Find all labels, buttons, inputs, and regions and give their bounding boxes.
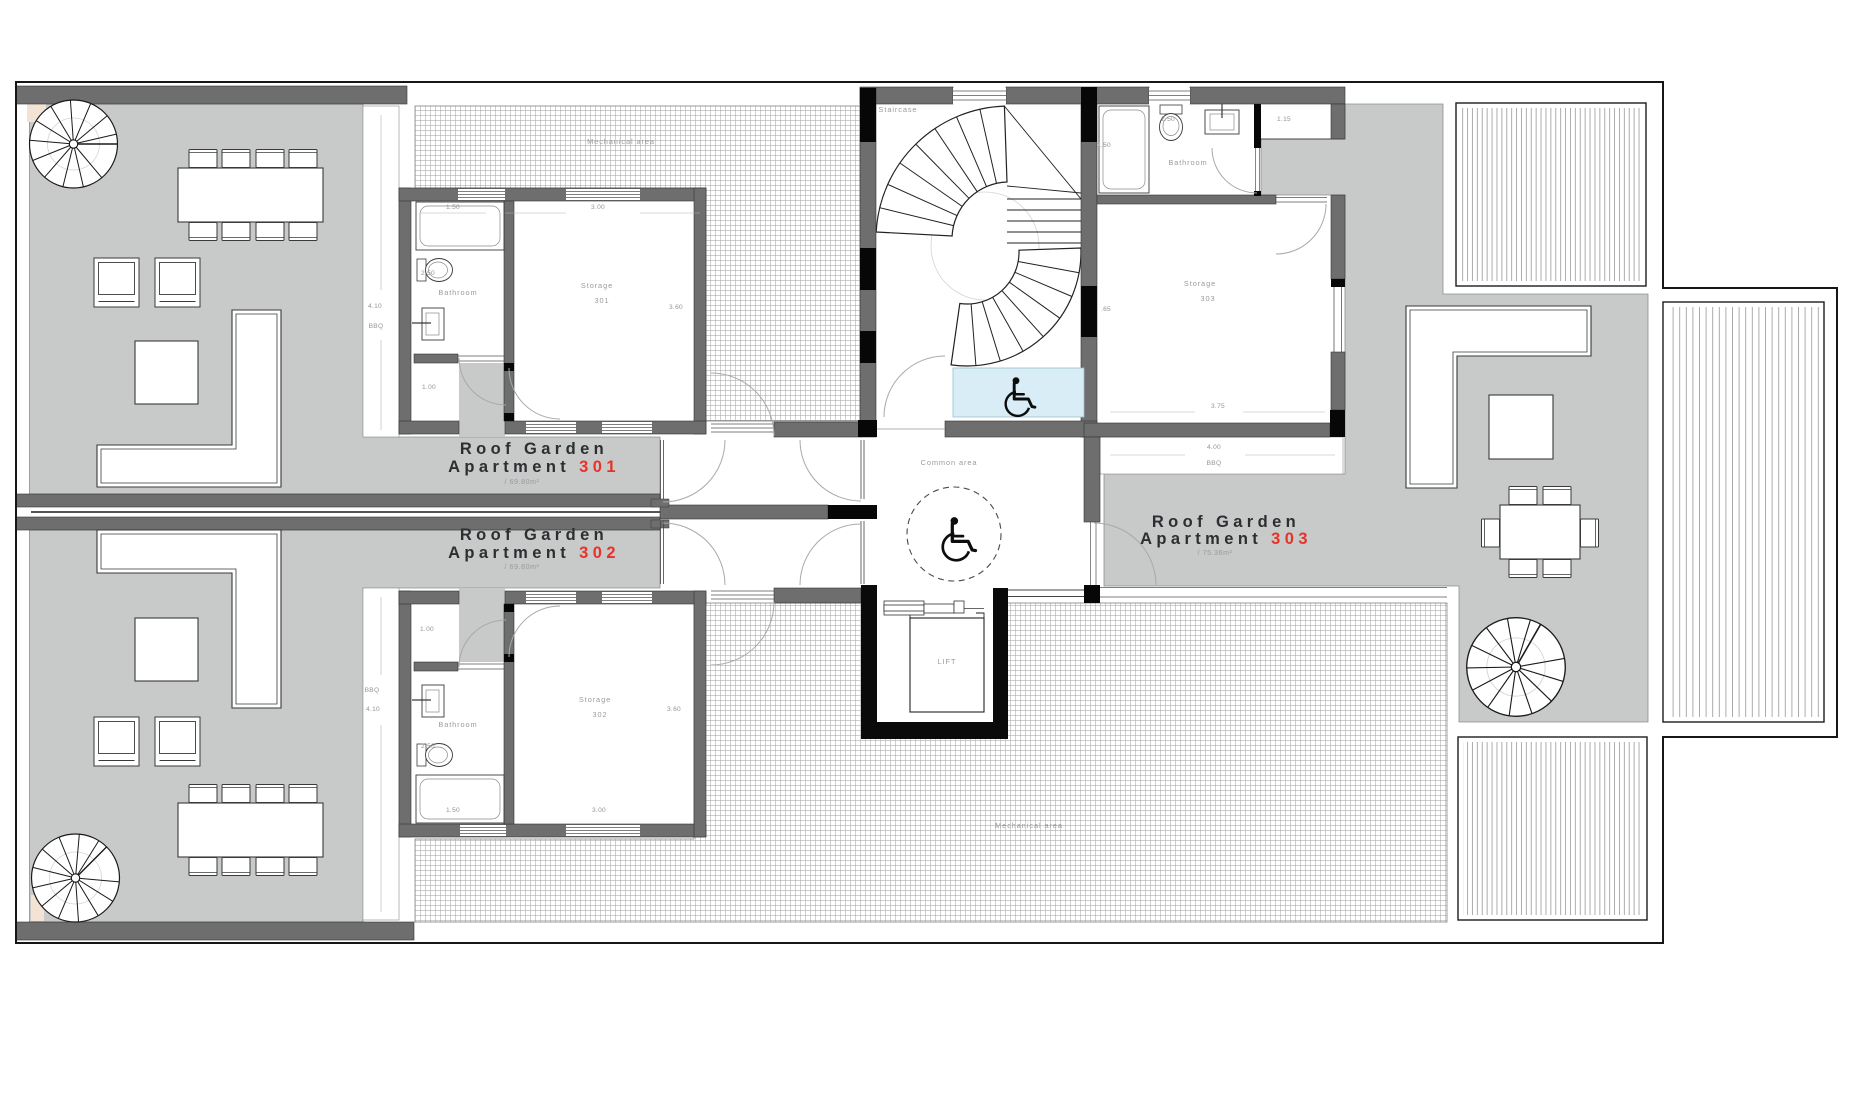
- svg-text:Apartment 302: Apartment 302: [448, 544, 620, 562]
- svg-text:/ 69.80m²: / 69.80m²: [505, 564, 540, 571]
- svg-text:303: 303: [1200, 294, 1215, 303]
- svg-text:Apartment 303: Apartment 303: [1140, 530, 1312, 548]
- svg-text:4.10: 4.10: [368, 303, 382, 310]
- svg-text:2.50: 2.50: [421, 270, 435, 277]
- svg-text:BBQ: BBQ: [1207, 460, 1222, 467]
- svg-text:Apartment 301: Apartment 301: [448, 458, 620, 476]
- svg-text:2.50: 2.50: [421, 743, 435, 750]
- svg-text:1.50: 1.50: [446, 204, 460, 211]
- svg-text:/ 69.80m²: / 69.80m²: [505, 479, 540, 486]
- svg-text:Bathroom: Bathroom: [1168, 158, 1207, 167]
- svg-text:Roof Garden: Roof Garden: [460, 526, 608, 544]
- svg-text:Mechanical area: Mechanical area: [587, 137, 655, 146]
- svg-text:/ 75.36m²: / 75.36m²: [1198, 550, 1233, 557]
- svg-text:.65: .65: [1101, 306, 1111, 313]
- svg-text:301: 301: [594, 296, 609, 305]
- svg-text:1.50: 1.50: [1097, 142, 1111, 149]
- svg-text:Bathroom: Bathroom: [438, 720, 477, 729]
- svg-text:Roof Garden: Roof Garden: [460, 440, 608, 458]
- svg-text:3.60: 3.60: [669, 304, 683, 311]
- svg-text:1.15: 1.15: [1277, 116, 1291, 123]
- svg-text:Roof Garden: Roof Garden: [1152, 513, 1300, 531]
- svg-text:3.00: 3.00: [591, 204, 605, 211]
- svg-text:Storage: Storage: [1184, 279, 1216, 288]
- svg-text:4.00: 4.00: [1207, 444, 1221, 451]
- svg-text:3.60: 3.60: [667, 706, 681, 713]
- svg-text:1.00: 1.00: [422, 384, 436, 391]
- svg-text:3.75: 3.75: [1211, 403, 1225, 410]
- svg-text:Storage: Storage: [579, 695, 611, 704]
- svg-text:302: 302: [592, 710, 607, 719]
- svg-text:LIFT: LIFT: [938, 657, 957, 666]
- svg-text:Storage: Storage: [581, 281, 613, 290]
- svg-text:1.50: 1.50: [446, 807, 460, 814]
- svg-text:Common area: Common area: [921, 458, 978, 467]
- svg-text:BBQ: BBQ: [365, 687, 380, 694]
- svg-text:Bathroom: Bathroom: [438, 288, 477, 297]
- svg-text:BBQ: BBQ: [369, 323, 384, 330]
- svg-text:4.10: 4.10: [366, 706, 380, 713]
- svg-text:1.00: 1.00: [420, 626, 434, 633]
- svg-text:2.50: 2.50: [1161, 116, 1175, 123]
- svg-text:Mechanical area: Mechanical area: [995, 821, 1063, 830]
- svg-text:3.00: 3.00: [592, 807, 606, 814]
- svg-text:Staircase: Staircase: [879, 105, 918, 114]
